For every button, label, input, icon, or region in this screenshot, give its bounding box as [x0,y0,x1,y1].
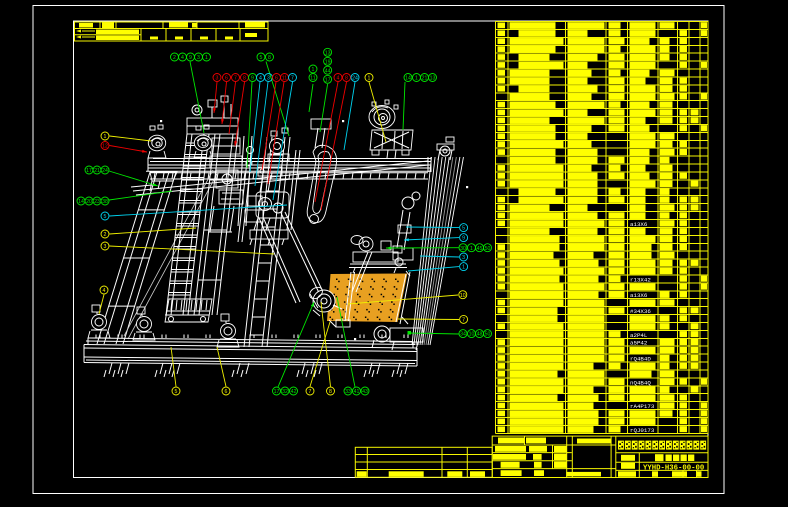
svg-text:14: 14 [405,76,411,82]
svg-text:7: 7 [309,389,312,395]
svg-text:1: 1 [470,246,473,252]
svg-text:6: 6 [225,76,228,82]
svg-text:4: 4 [181,55,184,61]
svg-text:6: 6 [275,76,278,82]
svg-text:12: 12 [102,144,108,150]
svg-text:13: 13 [325,50,331,56]
svg-text:21: 21 [94,168,100,174]
svg-text:a13X6: a13X6 [630,221,648,228]
svg-text:33: 33 [345,389,351,395]
svg-text:a13X6: a13X6 [630,292,648,299]
svg-text:7: 7 [291,76,294,82]
svg-text:1: 1 [368,76,371,82]
svg-text:23: 23 [94,199,100,205]
svg-text:20: 20 [86,199,92,205]
svg-text:a5P42: a5P42 [630,340,648,347]
svg-text:5: 5 [175,389,178,395]
svg-text:43: 43 [362,389,368,395]
svg-text:8: 8 [268,55,271,61]
svg-text:3: 3 [104,244,107,250]
svg-text:8: 8 [329,389,332,395]
svg-text:42: 42 [291,389,297,395]
svg-text:17: 17 [274,389,280,395]
svg-text:38: 38 [102,199,108,205]
svg-text:50: 50 [485,246,491,252]
svg-text:3: 3 [216,76,219,82]
svg-text:5: 5 [104,214,107,220]
svg-text:30: 30 [460,246,466,252]
svg-text:17: 17 [86,168,92,174]
svg-text:24: 24 [102,168,108,174]
svg-text:8: 8 [243,76,246,82]
svg-text:32: 32 [282,389,288,395]
svg-text:1: 1 [205,55,208,61]
svg-text:2: 2 [173,55,176,61]
svg-text:48: 48 [477,332,483,338]
svg-text:10: 10 [460,293,466,299]
svg-text:9: 9 [251,76,254,82]
svg-text:7: 7 [234,76,237,82]
svg-text:a2P4L: a2P4L [630,332,648,339]
svg-text:8: 8 [345,76,348,82]
svg-text:3: 3 [197,55,200,61]
svg-text:19: 19 [325,59,331,65]
svg-text:14: 14 [78,199,84,205]
svg-text:7: 7 [462,318,465,324]
svg-text:5: 5 [462,226,465,232]
svg-text:45: 45 [477,246,483,252]
svg-text:21: 21 [422,76,428,82]
svg-text:44: 44 [325,68,331,74]
svg-text:4: 4 [103,288,106,294]
svg-text:1: 1 [312,67,315,73]
svg-text:#34X36: #34X36 [630,308,651,315]
svg-text:10: 10 [469,332,475,338]
svg-text:1: 1 [104,134,107,140]
svg-text:5: 5 [260,55,263,61]
svg-text:3: 3 [462,255,465,261]
svg-text:rA4P173: rA4P173 [630,403,655,410]
svg-text:1: 1 [415,76,418,82]
svg-text:3: 3 [267,76,270,82]
svg-text:1: 1 [462,265,465,271]
svg-text:2: 2 [104,232,107,238]
svg-text:34: 34 [460,332,466,338]
svg-text:rQ4B4D: rQ4B4D [630,356,651,363]
svg-text:9: 9 [462,236,465,242]
svg-text:17: 17 [325,77,331,83]
svg-text:rQJ0173: rQJ0173 [630,427,655,434]
svg-text:11: 11 [282,76,287,82]
svg-text:6: 6 [225,389,228,395]
svg-text:50: 50 [485,332,491,338]
svg-text:41: 41 [354,389,360,395]
svg-text:13: 13 [430,76,436,82]
svg-text:24: 24 [352,76,358,82]
svg-text:4: 4 [337,76,340,82]
svg-text:9: 9 [189,55,192,61]
svg-text:4: 4 [259,76,262,82]
svg-text:r13X42: r13X42 [630,276,651,283]
svg-text:11: 11 [310,76,315,82]
svg-text:nQ4B4Q: nQ4B4Q [630,379,651,386]
svg-text:YYHD-H36-00-00: YYHD-H36-00-00 [643,464,704,472]
